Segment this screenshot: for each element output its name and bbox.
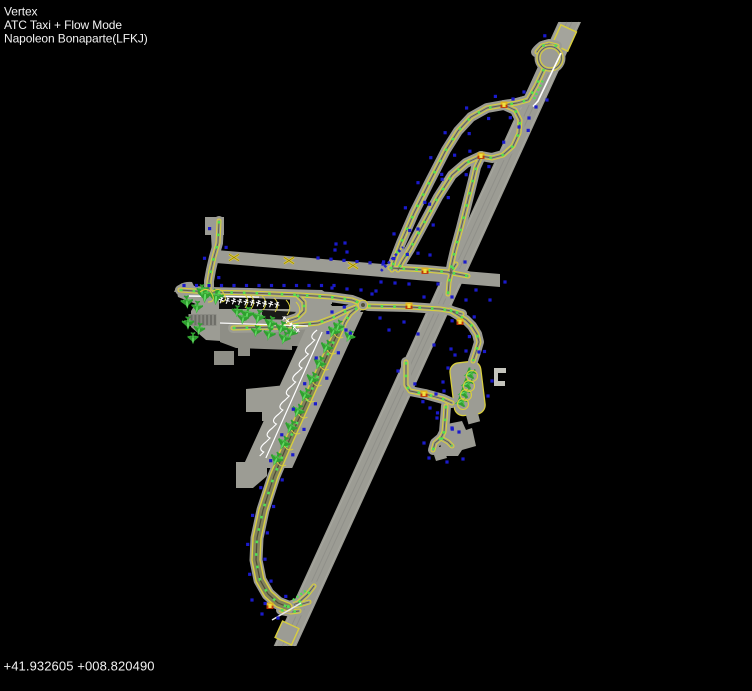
svg-text:Vertex: Vertex <box>4 4 38 18</box>
svg-text:ATC Taxi + Flow Mode: ATC Taxi + Flow Mode <box>4 18 122 32</box>
svg-text:Napoleon Bonaparte(LFKJ): Napoleon Bonaparte(LFKJ) <box>4 32 148 46</box>
svg-text:+41.932605 +008.820490: +41.932605 +008.820490 <box>4 659 155 674</box>
